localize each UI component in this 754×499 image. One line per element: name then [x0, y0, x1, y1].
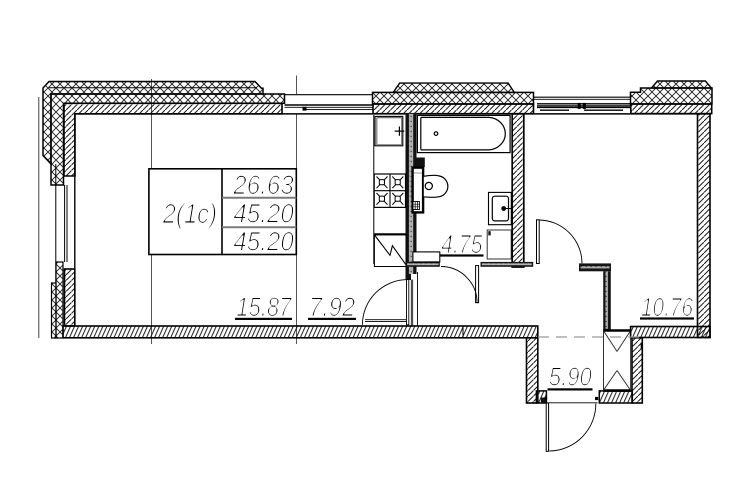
svg-text:5.90: 5.90	[549, 363, 592, 391]
svg-text:7.92: 7.92	[309, 292, 355, 322]
svg-text:2(1c): 2(1c)	[162, 198, 217, 229]
svg-text:45.20: 45.20	[233, 227, 293, 257]
svg-text:45.20: 45.20	[233, 199, 293, 229]
svg-text:26.63: 26.63	[232, 170, 293, 200]
svg-text:15.87: 15.87	[236, 292, 292, 322]
